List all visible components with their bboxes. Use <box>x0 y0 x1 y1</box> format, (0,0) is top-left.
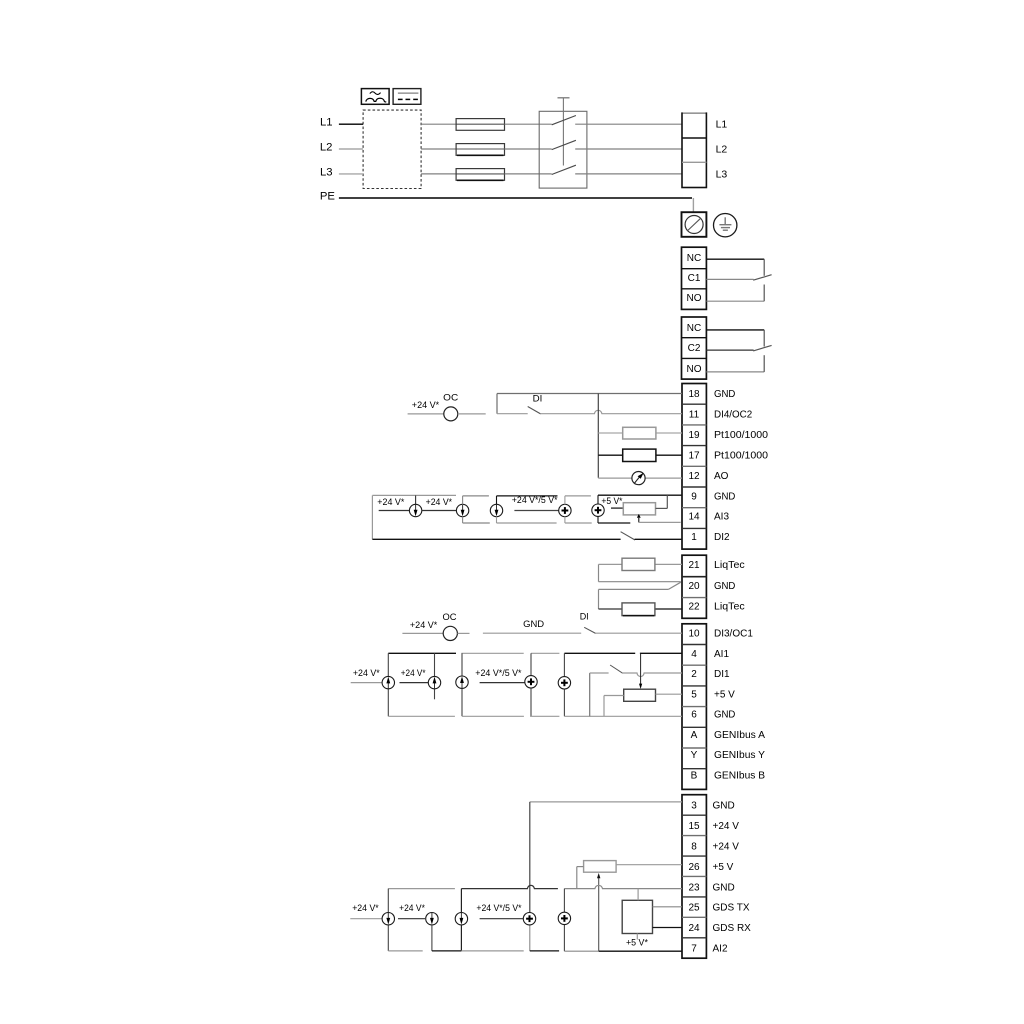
svg-text:GND: GND <box>714 389 735 400</box>
svg-text:+5 V*: +5 V* <box>626 938 648 948</box>
svg-text:9: 9 <box>691 491 697 502</box>
svg-text:L2: L2 <box>716 144 728 156</box>
svg-text:18: 18 <box>688 389 700 400</box>
svg-text:14: 14 <box>688 512 700 523</box>
svg-text:+5 V: +5 V <box>714 689 735 700</box>
svg-text:8: 8 <box>691 841 697 852</box>
svg-text:GND: GND <box>523 619 545 629</box>
svg-text:+5 V*: +5 V* <box>601 496 623 506</box>
svg-text:1: 1 <box>691 532 697 543</box>
svg-text:AI3: AI3 <box>714 512 729 523</box>
svg-text:Y: Y <box>691 750 698 761</box>
svg-text:+24 V*: +24 V* <box>410 620 438 630</box>
svg-text:OC: OC <box>443 612 458 622</box>
svg-text:LiqTec: LiqTec <box>714 602 745 613</box>
svg-text:5: 5 <box>691 689 697 700</box>
svg-text:+24 V*: +24 V* <box>377 497 404 507</box>
svg-text:+24 V*: +24 V* <box>426 497 453 507</box>
svg-text:L1: L1 <box>320 116 333 128</box>
svg-text:GENIbus A: GENIbus A <box>714 730 765 741</box>
svg-text:LiqTec: LiqTec <box>714 560 745 571</box>
svg-text:Pt100/1000: Pt100/1000 <box>714 450 768 461</box>
svg-text:+24 V*/5 V*: +24 V*/5 V* <box>475 668 522 678</box>
svg-text:GND: GND <box>714 710 735 721</box>
svg-text:22: 22 <box>688 602 700 613</box>
svg-text:AI1: AI1 <box>714 649 729 660</box>
svg-text:L3: L3 <box>716 169 728 181</box>
svg-text:NC: NC <box>687 253 701 264</box>
svg-text:2: 2 <box>691 669 697 680</box>
svg-text:DI3/OC1: DI3/OC1 <box>714 629 753 640</box>
svg-text:AI2: AI2 <box>713 944 728 955</box>
svg-text:4: 4 <box>691 649 697 660</box>
svg-text:B: B <box>691 771 698 782</box>
svg-text:+24 V*: +24 V* <box>399 903 425 913</box>
svg-text:L3: L3 <box>320 167 333 179</box>
svg-text:26: 26 <box>688 862 700 873</box>
svg-text:GND: GND <box>713 882 735 893</box>
svg-text:21: 21 <box>688 560 700 571</box>
svg-text:20: 20 <box>688 581 700 592</box>
svg-text:GENIbus Y: GENIbus Y <box>714 750 765 761</box>
svg-text:C1: C1 <box>688 273 701 284</box>
svg-text:3: 3 <box>691 801 697 812</box>
svg-text:GND: GND <box>713 801 735 812</box>
svg-text:10: 10 <box>688 629 700 640</box>
svg-text:Pt100/1000: Pt100/1000 <box>714 430 768 441</box>
svg-text:+24 V: +24 V <box>713 821 740 832</box>
svg-text:17: 17 <box>688 450 700 461</box>
svg-text:+24 V: +24 V <box>713 841 740 852</box>
svg-text:A: A <box>691 730 698 741</box>
svg-text:GDS TX: GDS TX <box>713 903 750 914</box>
svg-text:GND: GND <box>714 581 735 592</box>
svg-text:DI: DI <box>533 394 543 404</box>
svg-text:DI2: DI2 <box>714 532 730 543</box>
svg-text:L2: L2 <box>320 142 333 154</box>
svg-text:NO: NO <box>687 364 702 375</box>
svg-text:L1: L1 <box>716 119 728 131</box>
svg-text:DI1: DI1 <box>714 669 730 680</box>
svg-text:19: 19 <box>688 430 700 441</box>
svg-text:+24 V*: +24 V* <box>353 668 380 678</box>
svg-text:GDS RX: GDS RX <box>713 923 752 934</box>
svg-text:AO: AO <box>714 471 729 482</box>
svg-text:+5 V: +5 V <box>713 862 734 873</box>
svg-text:NC: NC <box>687 323 701 334</box>
svg-text:11: 11 <box>689 410 700 421</box>
svg-text:GENIbus B: GENIbus B <box>714 771 765 782</box>
svg-text:12: 12 <box>688 471 700 482</box>
svg-text:OC: OC <box>443 393 459 403</box>
svg-text:C2: C2 <box>688 343 701 354</box>
svg-text:15: 15 <box>688 821 700 832</box>
svg-text:+24 V*/5 V*: +24 V*/5 V* <box>512 495 558 505</box>
svg-text:DI: DI <box>580 611 589 621</box>
svg-text:+24 V*: +24 V* <box>401 668 426 678</box>
svg-text:PE: PE <box>320 191 336 203</box>
svg-text:GND: GND <box>714 491 735 502</box>
svg-text:+24 V*/5 V*: +24 V*/5 V* <box>476 903 522 913</box>
svg-text:6: 6 <box>691 710 697 721</box>
svg-text:+24 V*: +24 V* <box>352 903 379 913</box>
svg-text:DI4/OC2: DI4/OC2 <box>714 410 753 421</box>
svg-text:+24 V*: +24 V* <box>412 400 440 410</box>
svg-text:25: 25 <box>688 903 700 914</box>
svg-text:7: 7 <box>691 944 697 955</box>
svg-text:NO: NO <box>687 293 702 304</box>
svg-text:23: 23 <box>688 882 700 893</box>
svg-text:24: 24 <box>688 923 700 934</box>
